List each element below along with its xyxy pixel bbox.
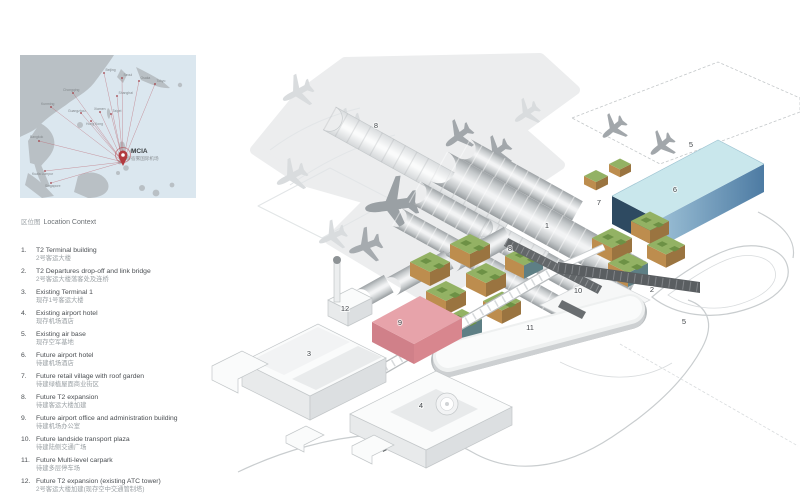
- legend-number: 7.: [21, 373, 33, 389]
- marker-6: 6: [673, 185, 677, 194]
- city-label: Singapore: [45, 184, 61, 188]
- marker-4: 4: [419, 401, 423, 410]
- legend-item-3: 3.Existing Terminal 1现存1号客运大楼: [21, 289, 211, 305]
- marker-11: 11: [526, 323, 534, 332]
- existing-terminal1-building: [212, 324, 386, 420]
- legend-en: T2 Departures drop-off and link bridge: [36, 268, 151, 276]
- legend-zh: 待建机场酒店: [36, 360, 93, 368]
- city-label: Bangkok: [30, 135, 43, 139]
- legend-item-11: 11.Future Multi-level carpark待建多层停车场: [21, 457, 211, 473]
- city-label: Osaka: [141, 76, 151, 80]
- legend-item-5: 5.Existing air base现存空军基地: [21, 331, 211, 347]
- hub-name-zh: 宿雾国际机场: [131, 155, 159, 162]
- marker-5a: 5: [689, 140, 693, 149]
- legend-number: 1.: [21, 247, 33, 263]
- city-label: Seoul: [124, 73, 133, 77]
- location-map-svg: Beijing Seoul Osaka Tokyo Shanghai Chong…: [20, 55, 196, 198]
- legend-number: 9.: [21, 415, 33, 431]
- city-label: Hong Kong: [86, 122, 103, 126]
- legend-zh: 现存机场酒店: [36, 318, 98, 326]
- map-caption-zh: 区位图: [21, 219, 41, 226]
- legend-zh: 待建机场办公室: [36, 423, 178, 431]
- legend-zh: 2号客运大楼落客处及连桥: [36, 276, 151, 284]
- legend-zh: 待建客运大楼加建: [36, 402, 98, 410]
- city-label: Chongqing: [63, 88, 80, 92]
- legend-item-12: 12.Future T2 expansion (existing ATC tow…: [21, 478, 211, 494]
- marker-9: 9: [398, 318, 402, 327]
- legend-item-8: 8.Future T2 expansion待建客运大楼加建: [21, 394, 211, 410]
- city-label: Tokyo: [157, 79, 166, 83]
- marker-7: 7: [597, 198, 601, 207]
- legend-item-1: 1.T2 Terminal building2号客运大楼: [21, 247, 211, 263]
- location-map: Beijing Seoul Osaka Tokyo Shanghai Chong…: [20, 55, 196, 198]
- masterplan-rendering: 1 2 3 4 5 5 6 7 8 8 9 10 11 12: [200, 0, 800, 497]
- legend-en: Existing Terminal 1: [36, 289, 93, 297]
- air-base-boundary: [572, 62, 800, 164]
- airplane-icon: [594, 109, 633, 149]
- marker-12: 12: [341, 304, 349, 313]
- legend-zh: 待建陆侧交通广场: [36, 444, 130, 452]
- legend-number: 5.: [21, 331, 33, 347]
- legend-number: 6.: [21, 352, 33, 368]
- city-label: Shanghai: [119, 91, 134, 95]
- legend-en: Future airport hotel: [36, 352, 93, 360]
- marker-10: 10: [574, 286, 582, 295]
- legend-item-6: 6.Future airport hotel待建机场酒店: [21, 352, 211, 368]
- map-caption-en: Location Context: [44, 219, 97, 226]
- legend-number: 4.: [21, 310, 33, 326]
- legend-item-10: 10.Future landside transport plaza待建陆侧交通…: [21, 436, 211, 452]
- legend-zh: 2号客运大楼: [36, 255, 97, 263]
- city-label: Taipei: [113, 109, 122, 113]
- legend-zh: 待建绿植屋面商业街区: [36, 381, 144, 389]
- marker-8b: 8: [508, 244, 512, 253]
- city-label: Xiamen: [94, 107, 106, 111]
- legend-number: 11.: [21, 457, 33, 473]
- marker-3: 3: [307, 349, 311, 358]
- legend-number: 2.: [21, 268, 33, 284]
- legend-en: Existing airport hotel: [36, 310, 98, 318]
- marker-8a: 8: [374, 121, 378, 130]
- legend-item-2: 2.T2 Departures drop-off and link bridge…: [21, 268, 211, 284]
- legend-number: 8.: [21, 394, 33, 410]
- legend-zh: 现存空军基地: [36, 339, 86, 347]
- legend-item-9: 9.Future airport office and administrati…: [21, 415, 211, 431]
- map-caption: 区位图Location Context: [21, 211, 96, 229]
- airplane-icon: [642, 126, 681, 166]
- presentation-page: Beijing Seoul Osaka Tokyo Shanghai Chong…: [0, 0, 800, 497]
- marker-5b: 5: [682, 317, 686, 326]
- legend-list: 1.T2 Terminal building2号客运大楼 2.T2 Depart…: [21, 247, 211, 497]
- legend-item-4: 4.Existing airport hotel现存机场酒店: [21, 310, 211, 326]
- marker-2: 2: [650, 285, 654, 294]
- city-label: Guangzhou: [68, 109, 86, 113]
- legend-en: Existing air base: [36, 331, 86, 339]
- city-label: Kuala Lumpur: [32, 172, 54, 176]
- legend-number: 3.: [21, 289, 33, 305]
- legend-item-7: 7.Future retail village with roof garden…: [21, 373, 211, 389]
- city-label: Beijing: [106, 68, 116, 72]
- legend-zh: 现存1号客运大楼: [36, 297, 93, 305]
- legend-number: 12.: [21, 478, 33, 494]
- legend-en: T2 Terminal building: [36, 247, 97, 255]
- legend-zh: 2号客运大楼加建(现存空中交通管制塔): [36, 486, 161, 494]
- city-label: Kunming: [41, 102, 54, 106]
- legend-zh: 待建多层停车场: [36, 465, 113, 473]
- hub-code-label: MCIA: [131, 148, 148, 155]
- legend-number: 10.: [21, 436, 33, 452]
- marker-1: 1: [545, 221, 549, 230]
